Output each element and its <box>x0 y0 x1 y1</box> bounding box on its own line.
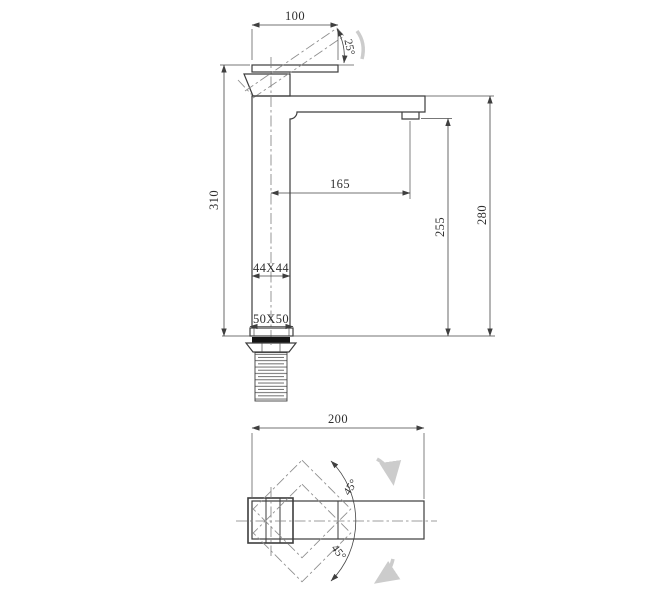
ghost-lever-top-edge <box>245 28 337 91</box>
lever-cap-wedge <box>244 74 290 96</box>
ghost-square-lower <box>253 484 351 582</box>
dim-label-310: 310 <box>207 190 221 210</box>
rubber-gasket <box>252 337 290 343</box>
ghost-lever-bottom-edge <box>253 36 344 98</box>
dim-25deg: 25° <box>337 29 363 65</box>
dim-50x50: 50X50 <box>250 312 293 327</box>
dim-label-50x50: 50X50 <box>253 312 289 326</box>
dim-165: 165 <box>271 121 410 199</box>
body-spout-outline <box>252 96 425 328</box>
dim-100: 100 <box>252 9 338 60</box>
dim-label-45deg-upper: 45° <box>341 477 360 497</box>
dim-200: 200 <box>252 412 424 499</box>
dim-label-280: 280 <box>475 205 489 225</box>
top-view: 45° 45° 200 <box>236 412 437 582</box>
base-plate <box>250 328 293 336</box>
handle-lever-tilted-ghost <box>238 28 344 98</box>
rotation-arrow-lower <box>378 559 393 581</box>
dim-280: 280 <box>425 96 494 336</box>
dim-44x44: 44X44 <box>252 261 290 276</box>
rotation-arrow-upper <box>377 459 393 481</box>
dim-label-44x44: 44X44 <box>253 261 289 275</box>
dim-label-45deg-lower: 45° <box>329 543 349 563</box>
dim-label-25deg: 25° <box>341 38 356 57</box>
faucet-body-spout <box>252 57 425 345</box>
dim-label-100: 100 <box>285 9 305 23</box>
technical-drawing-canvas: 100 25° 310 165 255 <box>0 0 670 600</box>
handle-lever <box>244 65 338 96</box>
dim-310: 310 <box>207 65 250 336</box>
side-view: 100 25° 310 165 255 <box>207 9 495 401</box>
handle-square <box>248 498 293 543</box>
dim-255: 255 <box>421 119 452 337</box>
threaded-tail <box>255 353 287 402</box>
dim-label-200: 200 <box>328 412 348 426</box>
rotation-hint-arrow <box>357 31 363 59</box>
faucet-technical-drawing: 100 25° 310 165 255 <box>0 0 670 600</box>
lever-bar <box>252 65 338 72</box>
mounting-assembly <box>246 328 296 401</box>
aerator <box>402 112 419 119</box>
dim-label-165: 165 <box>330 177 350 191</box>
dim-label-255: 255 <box>433 217 447 237</box>
